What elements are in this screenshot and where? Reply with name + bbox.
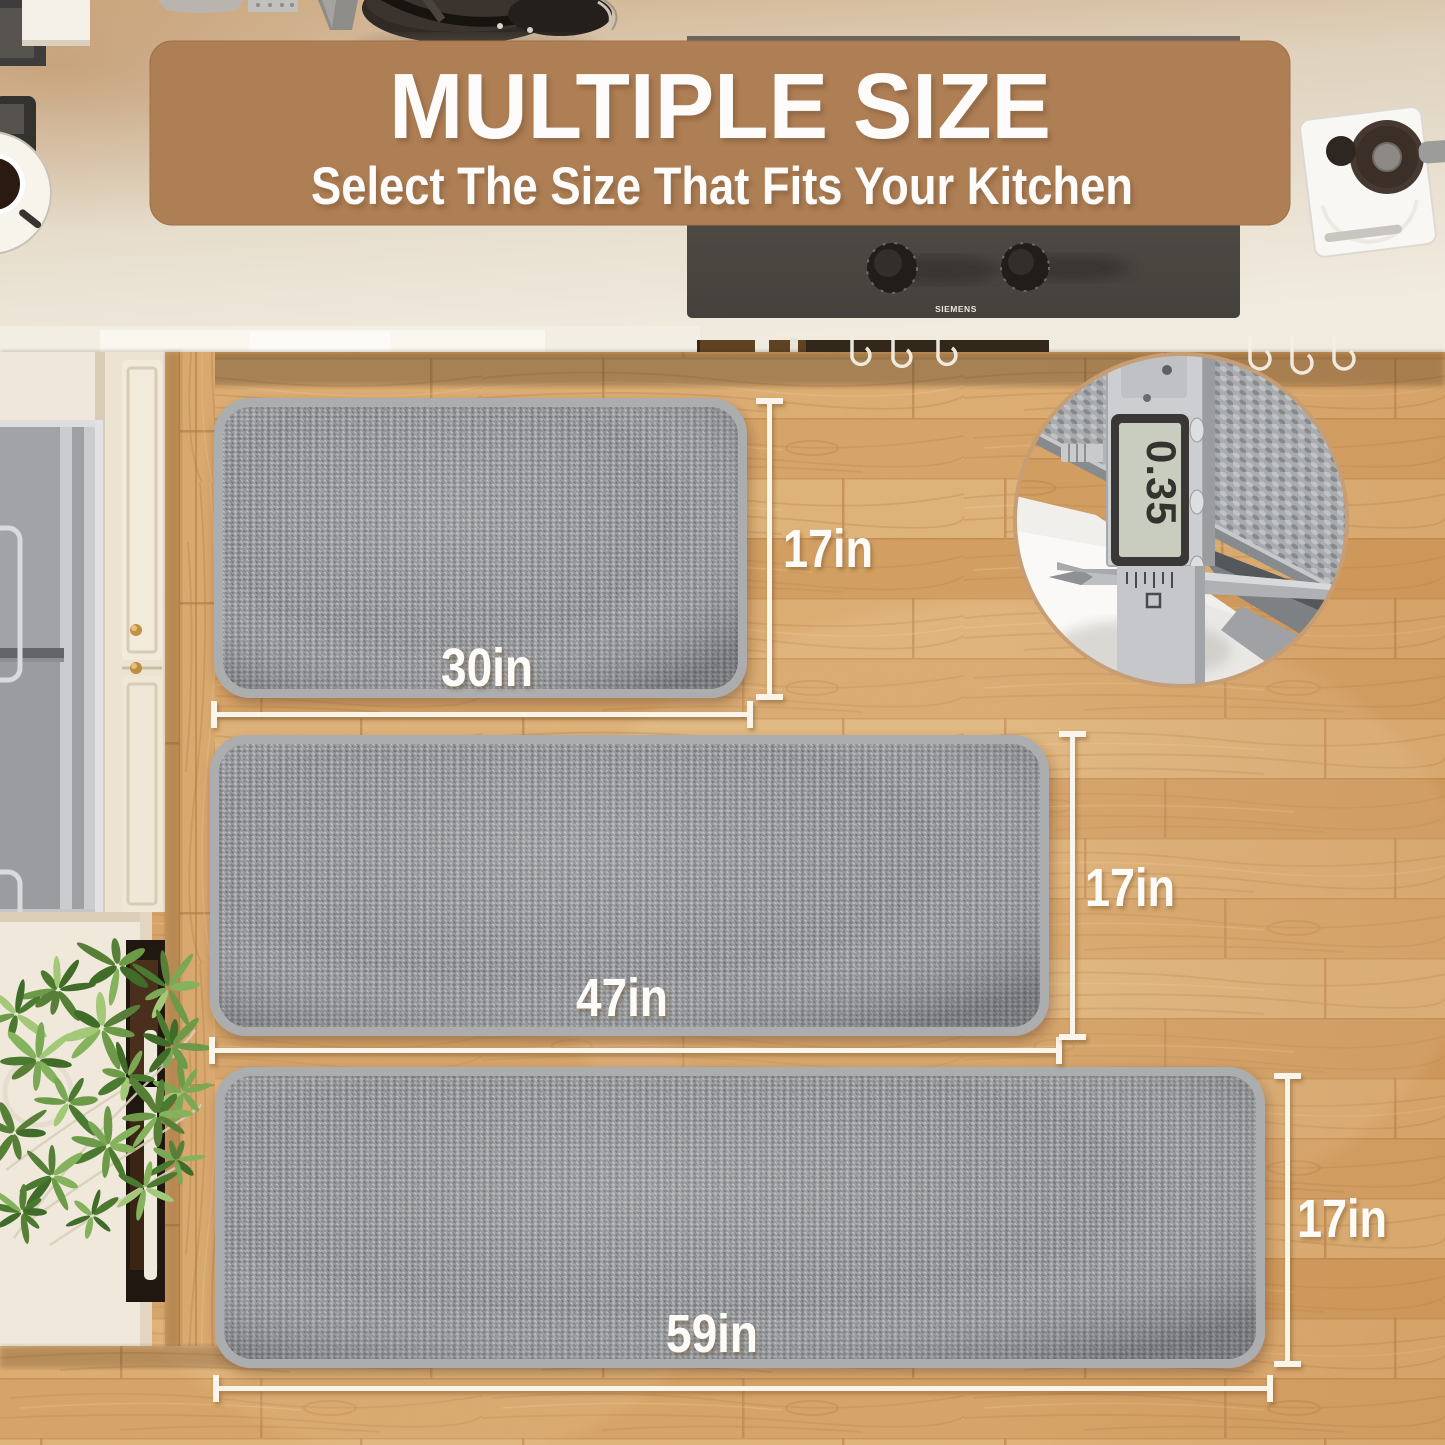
svg-text:0.35: 0.35	[1138, 440, 1185, 526]
svg-text:Select The Size That Fits Your: Select The Size That Fits Your Kitchen	[311, 157, 1133, 216]
svg-text:47in: 47in	[576, 968, 668, 1028]
svg-text:17in: 17in	[783, 519, 873, 579]
svg-text:SIEMENS: SIEMENS	[935, 304, 977, 314]
svg-text:17in: 17in	[1085, 858, 1175, 918]
svg-text:17in: 17in	[1297, 1189, 1387, 1249]
svg-text:59in: 59in	[666, 1304, 758, 1364]
svg-text:MULTIPLE SIZE: MULTIPLE SIZE	[389, 54, 1051, 158]
svg-text:30in: 30in	[441, 638, 533, 698]
